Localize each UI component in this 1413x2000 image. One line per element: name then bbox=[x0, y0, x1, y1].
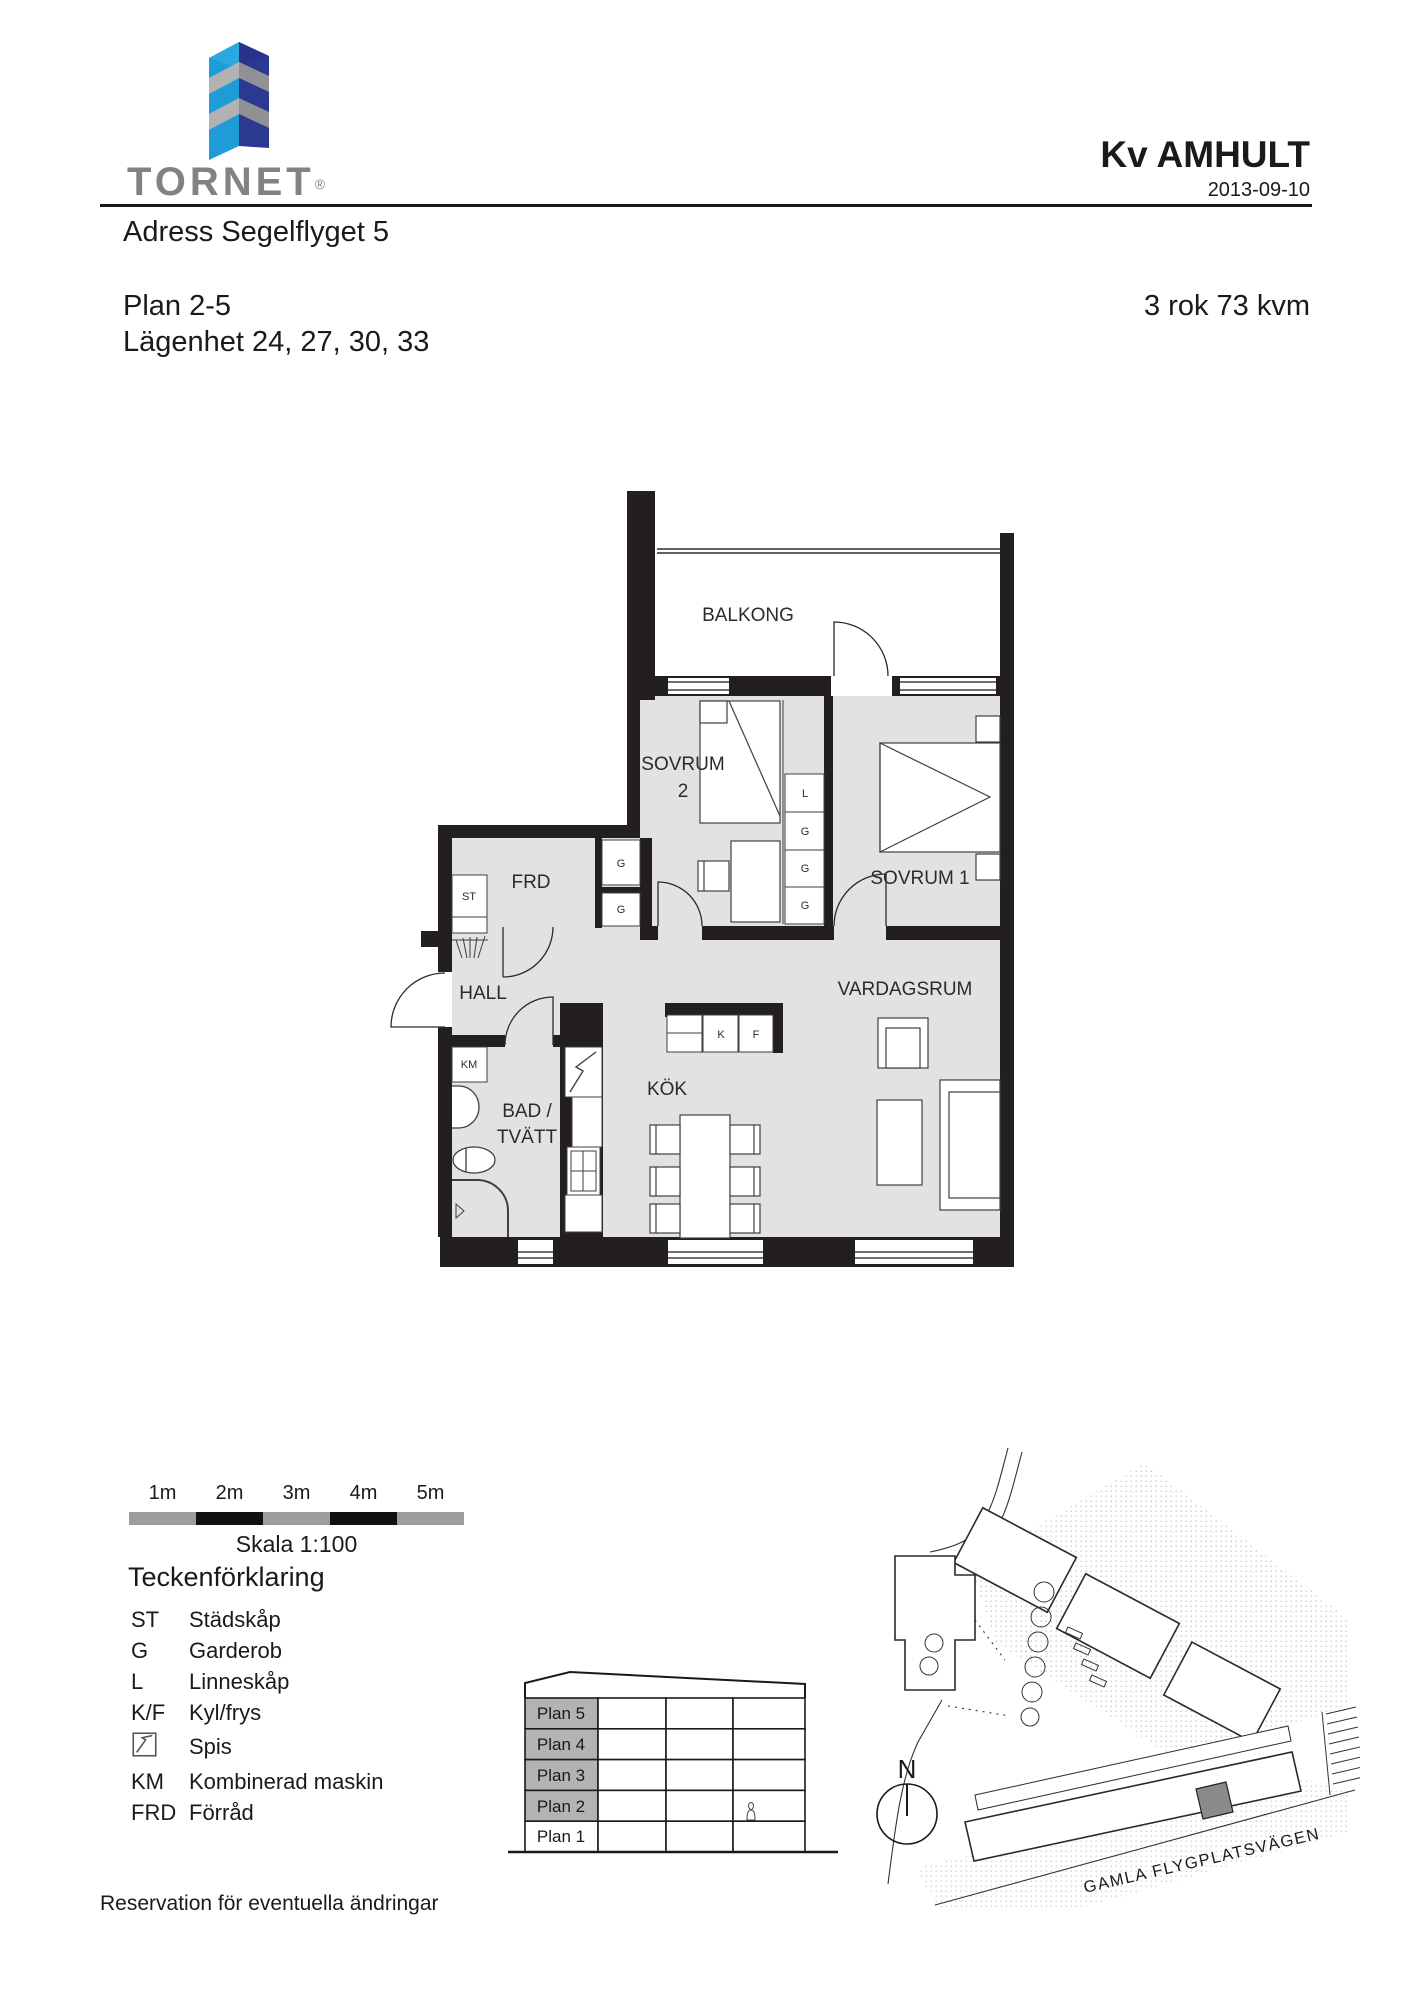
entrance-door bbox=[391, 973, 445, 1027]
legend-item: KM Kombinerad maskin bbox=[131, 1766, 383, 1797]
marker-g: G bbox=[801, 863, 810, 875]
marker-g: G bbox=[801, 826, 810, 838]
room-label-hall: HALL bbox=[459, 983, 507, 1004]
plan-line: Plan 2-5 bbox=[123, 290, 231, 323]
legend-abbr: KM bbox=[131, 1769, 189, 1795]
marker-f: F bbox=[753, 1029, 760, 1041]
marker-km: KM bbox=[461, 1059, 478, 1071]
chair bbox=[730, 1167, 760, 1196]
chair bbox=[650, 1167, 680, 1196]
legend-title: Teckenförklaring bbox=[128, 1562, 325, 1593]
scale-label: 2m bbox=[196, 1482, 263, 1505]
document-date: 2013-09-10 bbox=[810, 179, 1310, 202]
highlighted-unit bbox=[1196, 1782, 1233, 1819]
legend-label: Kyl/frys bbox=[189, 1700, 261, 1726]
brand-name: TORNET bbox=[127, 160, 315, 204]
room-label-sovrum2-num: 2 bbox=[678, 781, 689, 802]
scale-label: 1m bbox=[129, 1482, 196, 1505]
legend-label: Linneskåp bbox=[189, 1669, 289, 1695]
disclaimer: Reservation för eventuella ändringar bbox=[100, 1892, 439, 1916]
floor-label: Plan 4 bbox=[537, 1735, 585, 1754]
legend-label: Förråd bbox=[189, 1800, 254, 1826]
scale-label: 3m bbox=[263, 1482, 330, 1505]
stove-icon bbox=[131, 1731, 158, 1758]
north-compass: N bbox=[877, 1754, 937, 1844]
legend-label: Städskåp bbox=[189, 1607, 281, 1633]
legend-item: Spis bbox=[131, 1728, 383, 1766]
registered-mark: ® bbox=[315, 176, 325, 192]
legend-item: ST Städskåp bbox=[131, 1604, 383, 1635]
legend-item: K/F Kyl/frys bbox=[131, 1697, 383, 1728]
tornet-logo-tower bbox=[195, 28, 285, 164]
legend-list: ST Städskåp G Garderob L Linneskåp K/F K… bbox=[131, 1604, 383, 1828]
legend-label: Garderob bbox=[189, 1638, 282, 1664]
room-label-sovrum2: SOVRUM bbox=[641, 754, 724, 775]
project-title: Kv AMHULT bbox=[810, 134, 1310, 176]
header-divider bbox=[100, 204, 1312, 207]
dining-table bbox=[680, 1115, 730, 1238]
room-label-tvatt: TVÄTT bbox=[497, 1127, 558, 1148]
desk-chair bbox=[698, 861, 729, 891]
address-line: Adress Segelflyget 5 bbox=[123, 216, 389, 249]
desk bbox=[731, 841, 780, 922]
balcony-door bbox=[834, 622, 888, 676]
legend-abbr: K/F bbox=[131, 1700, 189, 1726]
chair bbox=[730, 1125, 760, 1154]
marker-g: G bbox=[617, 904, 626, 916]
size-line: 3 rok 73 kvm bbox=[910, 290, 1310, 323]
marker-g: G bbox=[617, 858, 626, 870]
chair bbox=[650, 1125, 680, 1154]
legend-label: Kombinerad maskin bbox=[189, 1769, 383, 1795]
floor-label: Plan 1 bbox=[537, 1827, 585, 1846]
floor-plan: BALKONG SOVRUM 2 SOVRUM 1 VARDAGSRUM FRD… bbox=[300, 370, 1040, 1280]
toilet bbox=[453, 1147, 495, 1173]
chair bbox=[730, 1204, 760, 1233]
legend-item: G Garderob bbox=[131, 1635, 383, 1666]
room-label-frd: FRD bbox=[511, 872, 550, 893]
room-label-kok: KÖK bbox=[647, 1079, 687, 1100]
legend-label: Spis bbox=[189, 1734, 232, 1760]
floor-label: Plan 3 bbox=[537, 1766, 585, 1785]
bedside-table bbox=[976, 854, 1000, 880]
bed-double bbox=[880, 743, 1000, 852]
room-label-balkong: BALKONG bbox=[702, 605, 794, 626]
legend-abbr: FRD bbox=[131, 1800, 189, 1826]
site-parking bbox=[1322, 1707, 1360, 1795]
legend-abbr-icon bbox=[131, 1731, 189, 1764]
scale-label: 4m bbox=[330, 1482, 397, 1505]
legend-item: L Linneskåp bbox=[131, 1666, 383, 1697]
scale-bar-labels: 1m 2m 3m 4m 5m bbox=[129, 1482, 464, 1505]
document-page: TORNET® Kv AMHULT 2013-09-10 Adress Sege… bbox=[0, 0, 1413, 2000]
floor-label: Plan 2 bbox=[537, 1797, 585, 1816]
marker-st: ST bbox=[462, 891, 476, 903]
apartments-line: Lägenhet 24, 27, 30, 33 bbox=[123, 326, 429, 359]
legend-abbr: G bbox=[131, 1638, 189, 1664]
scale-bar bbox=[129, 1512, 464, 1525]
scale-label: 5m bbox=[397, 1482, 464, 1505]
site-plan: N GAMLA FLYGPLATSVÄGEN bbox=[860, 1440, 1360, 1960]
balcony-railing bbox=[657, 549, 1000, 553]
legend-abbr: ST bbox=[131, 1607, 189, 1633]
brand-wordmark: TORNET® bbox=[127, 160, 325, 205]
marker-l: L bbox=[802, 788, 808, 800]
coffee-table bbox=[877, 1100, 922, 1185]
legend-abbr: L bbox=[131, 1669, 189, 1695]
north-label: N bbox=[898, 1754, 917, 1784]
chair bbox=[650, 1204, 680, 1233]
room-label-sovrum1: SOVRUM 1 bbox=[870, 868, 969, 889]
building-section: Plan 5 Plan 4 Plan 3 Plan 2 Plan 1 bbox=[490, 1650, 850, 1865]
scale-caption: Skala 1:100 bbox=[129, 1531, 464, 1558]
room-label-bad: BAD / bbox=[502, 1101, 552, 1122]
floor-label: Plan 5 bbox=[537, 1704, 585, 1723]
bedside-table bbox=[976, 716, 1000, 742]
marker-g: G bbox=[801, 900, 810, 912]
room-label-vardagsrum: VARDAGSRUM bbox=[838, 979, 973, 1000]
marker-k: K bbox=[717, 1029, 725, 1041]
legend-item: FRD Förråd bbox=[131, 1797, 383, 1828]
